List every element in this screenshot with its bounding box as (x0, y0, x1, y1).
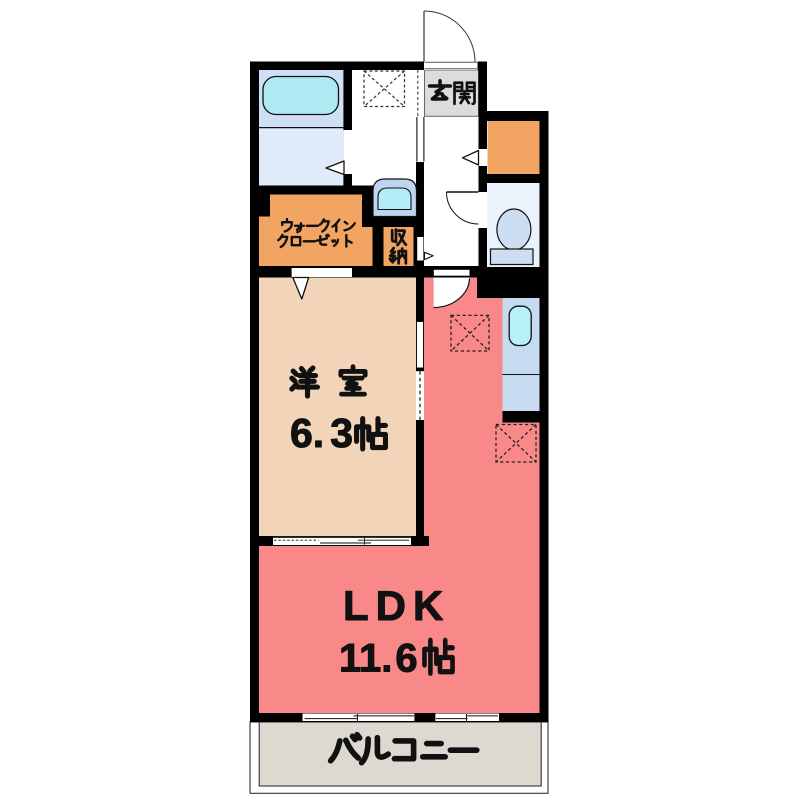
svg-text:11.6: 11.6 (339, 637, 418, 681)
svg-text:LDK: LDK (343, 582, 450, 629)
svg-text:6.3: 6.3 (290, 410, 353, 456)
